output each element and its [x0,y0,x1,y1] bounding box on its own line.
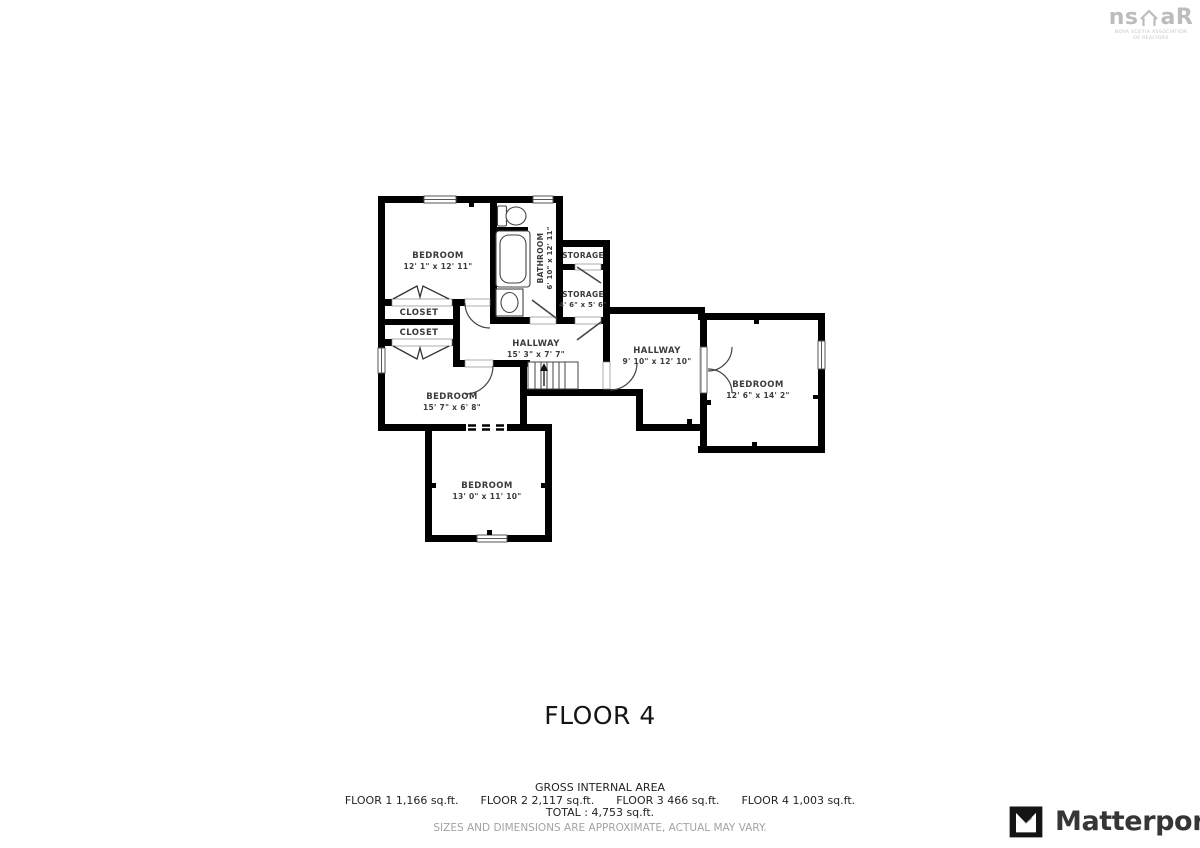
svg-text:BEDROOM: BEDROOM [461,481,513,491]
room-label-hallway-right: HALLWAY 9' 10" x 12' 10" [622,346,691,366]
floor-3-area: FLOOR 3 466 sq.ft. [616,794,719,807]
room-label-closet-lower: CLOSET [400,328,439,338]
door-leaf [577,322,601,340]
svg-text:4' 6" x 5' 6": 4' 6" x 5' 6" [559,301,607,309]
svg-text:STORAGE: STORAGE [562,251,604,260]
door-arc [708,369,732,393]
door-arc [465,303,490,328]
floor-4-area: FLOOR 4 1,003 sq.ft. [741,794,855,807]
room-label-closet-upper: CLOSET [400,308,439,318]
svg-text:CLOSET: CLOSET [400,328,439,338]
door-arc [465,366,493,394]
windows [378,196,825,542]
svg-text:BEDROOM: BEDROOM [412,251,464,261]
svg-text:STORAGE: STORAGE [562,290,604,299]
toilet-bowl-icon [506,207,526,225]
floor-1-area: FLOOR 1 1,166 sq.ft. [345,794,459,807]
svg-text:CLOSET: CLOSET [400,308,439,318]
toilet-tank-icon [498,206,507,226]
svg-text:13' 0" x 11' 10": 13' 0" x 11' 10" [452,492,521,501]
svg-text:12' 1" x 12' 11": 12' 1" x 12' 11" [403,262,472,271]
svg-text:HALLWAY: HALLWAY [633,346,681,356]
svg-text:BEDROOM: BEDROOM [732,380,784,390]
door-arc [610,363,637,390]
door-arc [708,347,732,371]
room-label-hallway-left: HALLWAY 15' 3" x 7' 7" [507,339,565,359]
svg-text:9' 10" x 12' 10": 9' 10" x 12' 10" [622,357,691,366]
svg-text:15' 7" x 6' 8": 15' 7" x 6' 8" [423,403,481,412]
floor-2-area: FLOOR 2 2,117 sq.ft. [481,794,595,807]
room-label-bedroom-right: BEDROOM 12' 6" x 14' 2" [726,380,790,400]
svg-text:15' 3" x 7' 7": 15' 3" x 7' 7" [507,350,565,359]
room-label-storage-upper: STORAGE [562,251,604,260]
area-summary-title: GROSS INTERNAL AREA [0,782,1200,795]
matterport-icon [1006,800,1046,842]
matterport-wordmark: Matterport [1055,806,1200,837]
svg-text:BATHROOM: BATHROOM [536,233,545,284]
sink-basin-icon [501,293,518,313]
walls [378,196,825,542]
bathtub-inner-icon [500,235,526,283]
matterport-logo: Matterport [1006,800,1200,842]
floorplan-page: ns aR NOVA SCOTIA ASSOCIATION OF REALTOR… [0,0,1200,848]
room-label-bathroom: BATHROOM 6' 10" x 12' 11" [536,226,554,289]
svg-text:12' 6" x 14' 2": 12' 6" x 14' 2" [726,391,790,400]
bathroom-fixtures [496,206,530,316]
stairs [528,362,578,389]
bifold-door [393,286,449,299]
room-label-storage-lower: STORAGE 4' 6" x 5' 6" [559,290,607,309]
bifold-door [393,346,449,359]
floor-title: FLOOR 4 [0,701,1200,730]
double-door-leaf [701,347,707,393]
dashed-opening [466,423,507,432]
room-label-bedroom-bottom: BEDROOM 13' 0" x 11' 10" [452,481,521,501]
svg-text:6' 10" x 12' 11": 6' 10" x 12' 11" [546,226,554,289]
svg-text:BEDROOM: BEDROOM [426,392,478,402]
room-label-bedroom-top-left: BEDROOM 12' 1" x 12' 11" [403,251,472,271]
room-label-bedroom-middle: BEDROOM 15' 7" x 6' 8" [423,392,481,412]
svg-text:HALLWAY: HALLWAY [512,339,560,349]
door-leaf [532,300,556,318]
